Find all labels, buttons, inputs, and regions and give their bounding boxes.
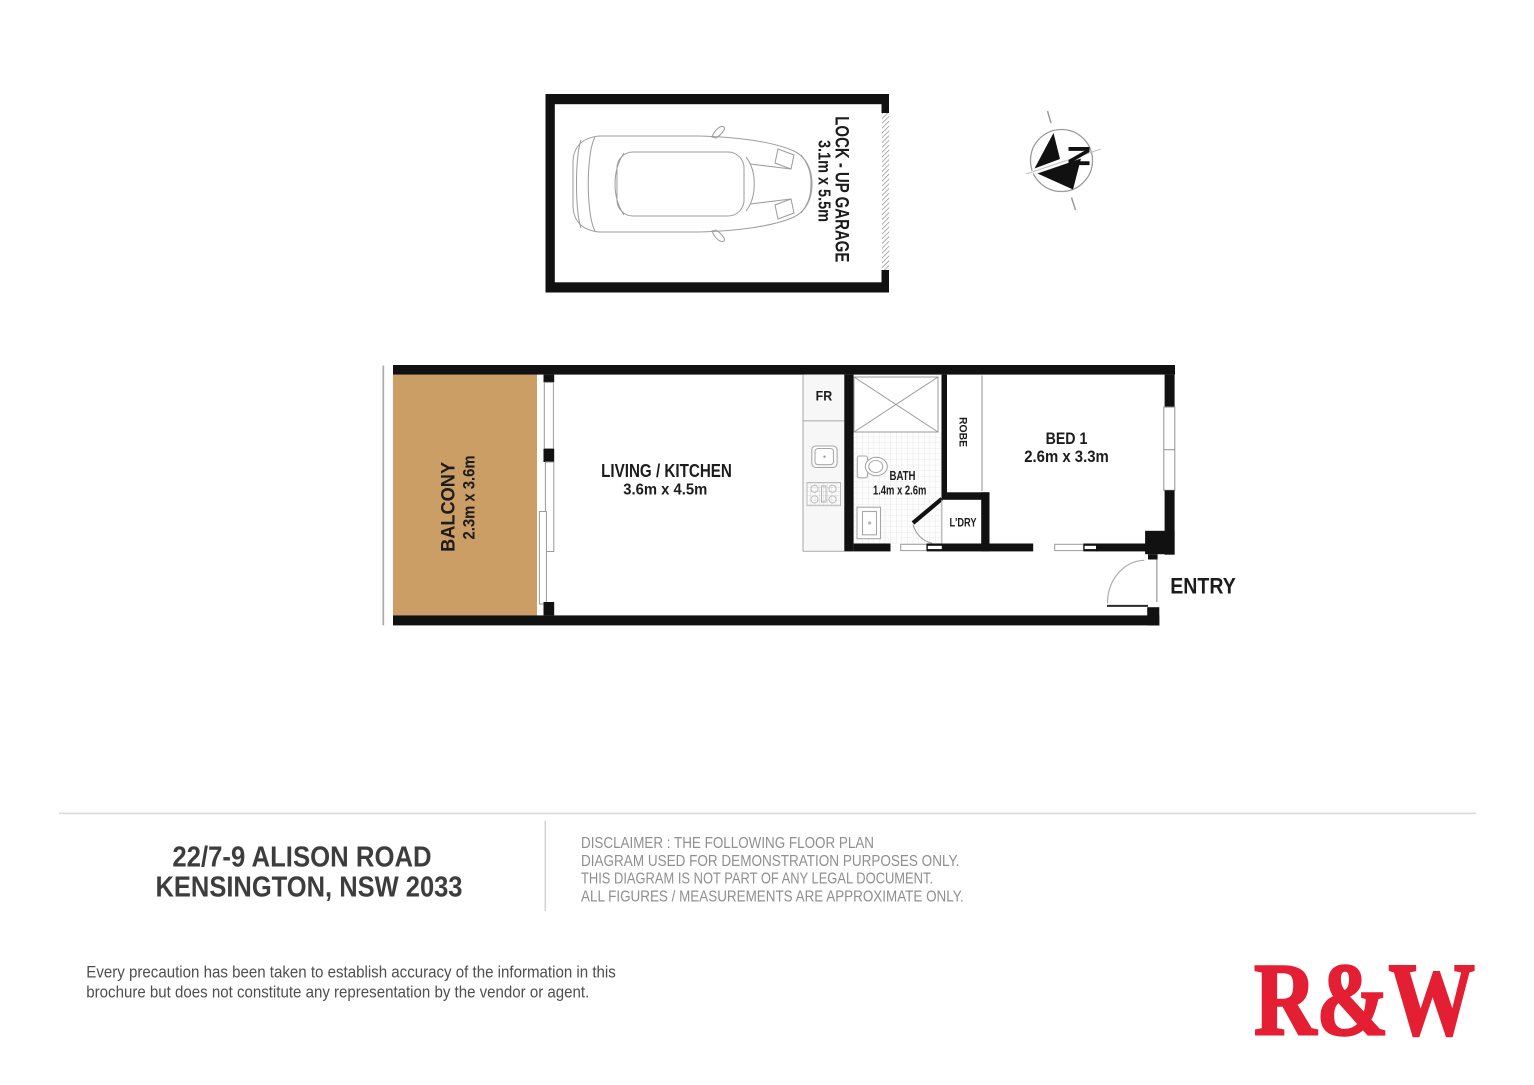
svg-text:R&W: R&W — [1254, 942, 1475, 1057]
svg-text:Every precaution has been take: Every precaution has been taken to estab… — [86, 962, 616, 981]
svg-text:DISCLAIMER : THE FOLLOWING FLO: DISCLAIMER : THE FOLLOWING FLOOR PLAN — [581, 835, 874, 852]
svg-text:brochure but does not constitu: brochure but does not constitute any rep… — [86, 982, 589, 1001]
svg-text:ROBE: ROBE — [957, 417, 969, 447]
svg-text:KENSINGTON, NSW 2033: KENSINGTON, NSW 2033 — [156, 872, 463, 904]
svg-text:1.4m x 2.6m: 1.4m x 2.6m — [873, 483, 927, 498]
svg-text:L'DRY: L'DRY — [950, 516, 977, 530]
svg-text:BALCONY: BALCONY — [438, 462, 459, 552]
svg-text:2.6m x 3.3m: 2.6m x 3.3m — [1024, 448, 1109, 466]
svg-text:ALL FIGURES / MEASUREMENTS ARE: ALL FIGURES / MEASUREMENTS ARE APPROXIMA… — [581, 889, 964, 906]
svg-text:BATH: BATH — [890, 468, 916, 483]
svg-text:N: N — [1061, 145, 1096, 167]
svg-text:2.3m x 3.6m: 2.3m x 3.6m — [461, 455, 479, 539]
svg-text:22/7-9 ALISON ROAD: 22/7-9 ALISON ROAD — [172, 842, 431, 874]
svg-text:3.1m x 5.5m: 3.1m x 5.5m — [814, 140, 834, 222]
svg-text:THIS DIAGRAM IS NOT PART OF AN: THIS DIAGRAM IS NOT PART OF ANY LEGAL DO… — [581, 871, 933, 888]
svg-text:BED 1: BED 1 — [1046, 430, 1088, 448]
svg-text:LIVING / KITCHEN: LIVING / KITCHEN — [601, 461, 732, 481]
svg-text:DIAGRAM USED FOR DEMONSTRATION: DIAGRAM USED FOR DEMONSTRATION PURPOSES … — [581, 853, 960, 870]
svg-text:3.6m x 4.5m: 3.6m x 4.5m — [623, 481, 707, 498]
svg-text:FR: FR — [816, 387, 833, 403]
svg-text:ENTRY: ENTRY — [1170, 573, 1236, 598]
